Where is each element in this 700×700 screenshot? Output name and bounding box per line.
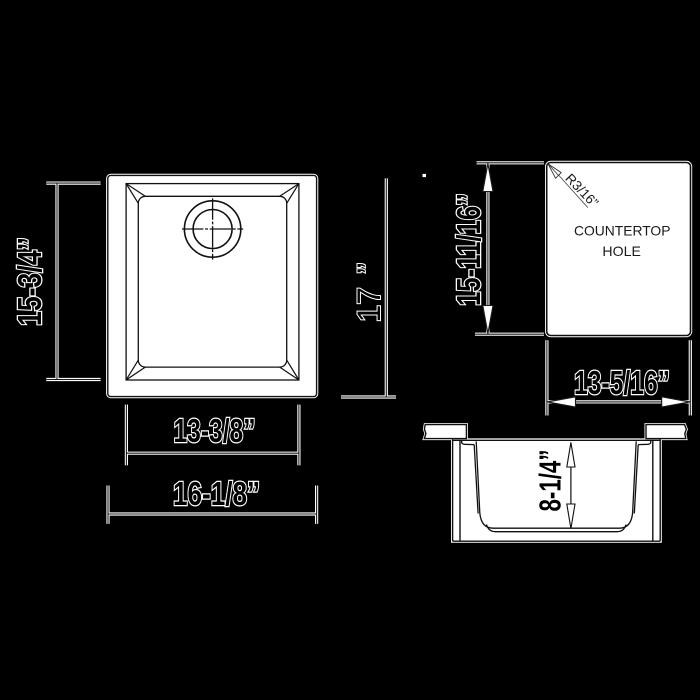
svg-text:”: ” [351,263,387,274]
svg-text:8-1/4”: 8-1/4” [533,450,568,512]
svg-text:COUNTERTOP: COUNTERTOP [574,223,671,239]
svg-text:16-1/8”: 16-1/8” [173,475,260,512]
svg-text:13-3/8”: 13-3/8” [174,412,256,449]
svg-text:17: 17 [351,287,387,323]
svg-text:HOLE: HOLE [602,243,641,259]
svg-text:15-11/16”: 15-11/16” [450,193,487,306]
svg-text:13-5/16”: 13-5/16” [574,364,670,401]
svg-text:15-3/4”: 15-3/4” [11,237,48,326]
